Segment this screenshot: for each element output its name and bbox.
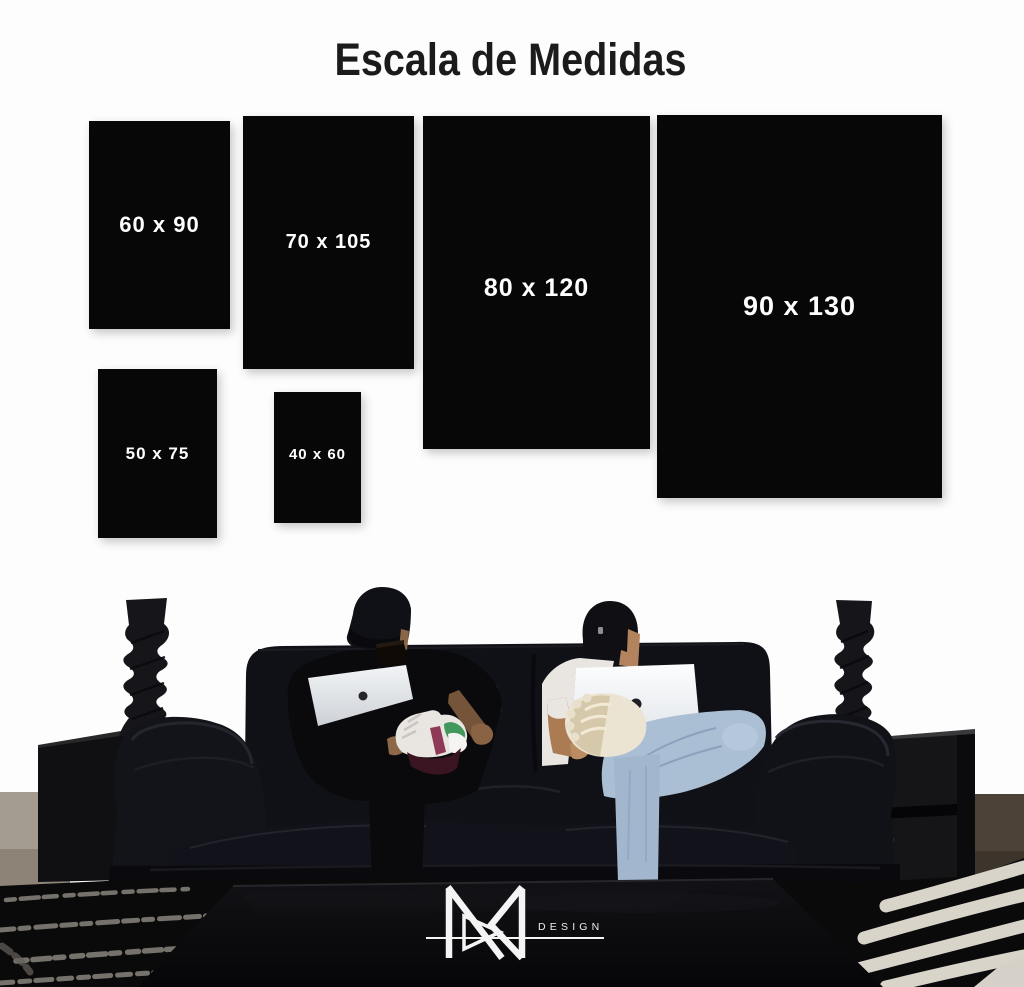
svg-text:DESIGN: DESIGN bbox=[538, 921, 603, 933]
